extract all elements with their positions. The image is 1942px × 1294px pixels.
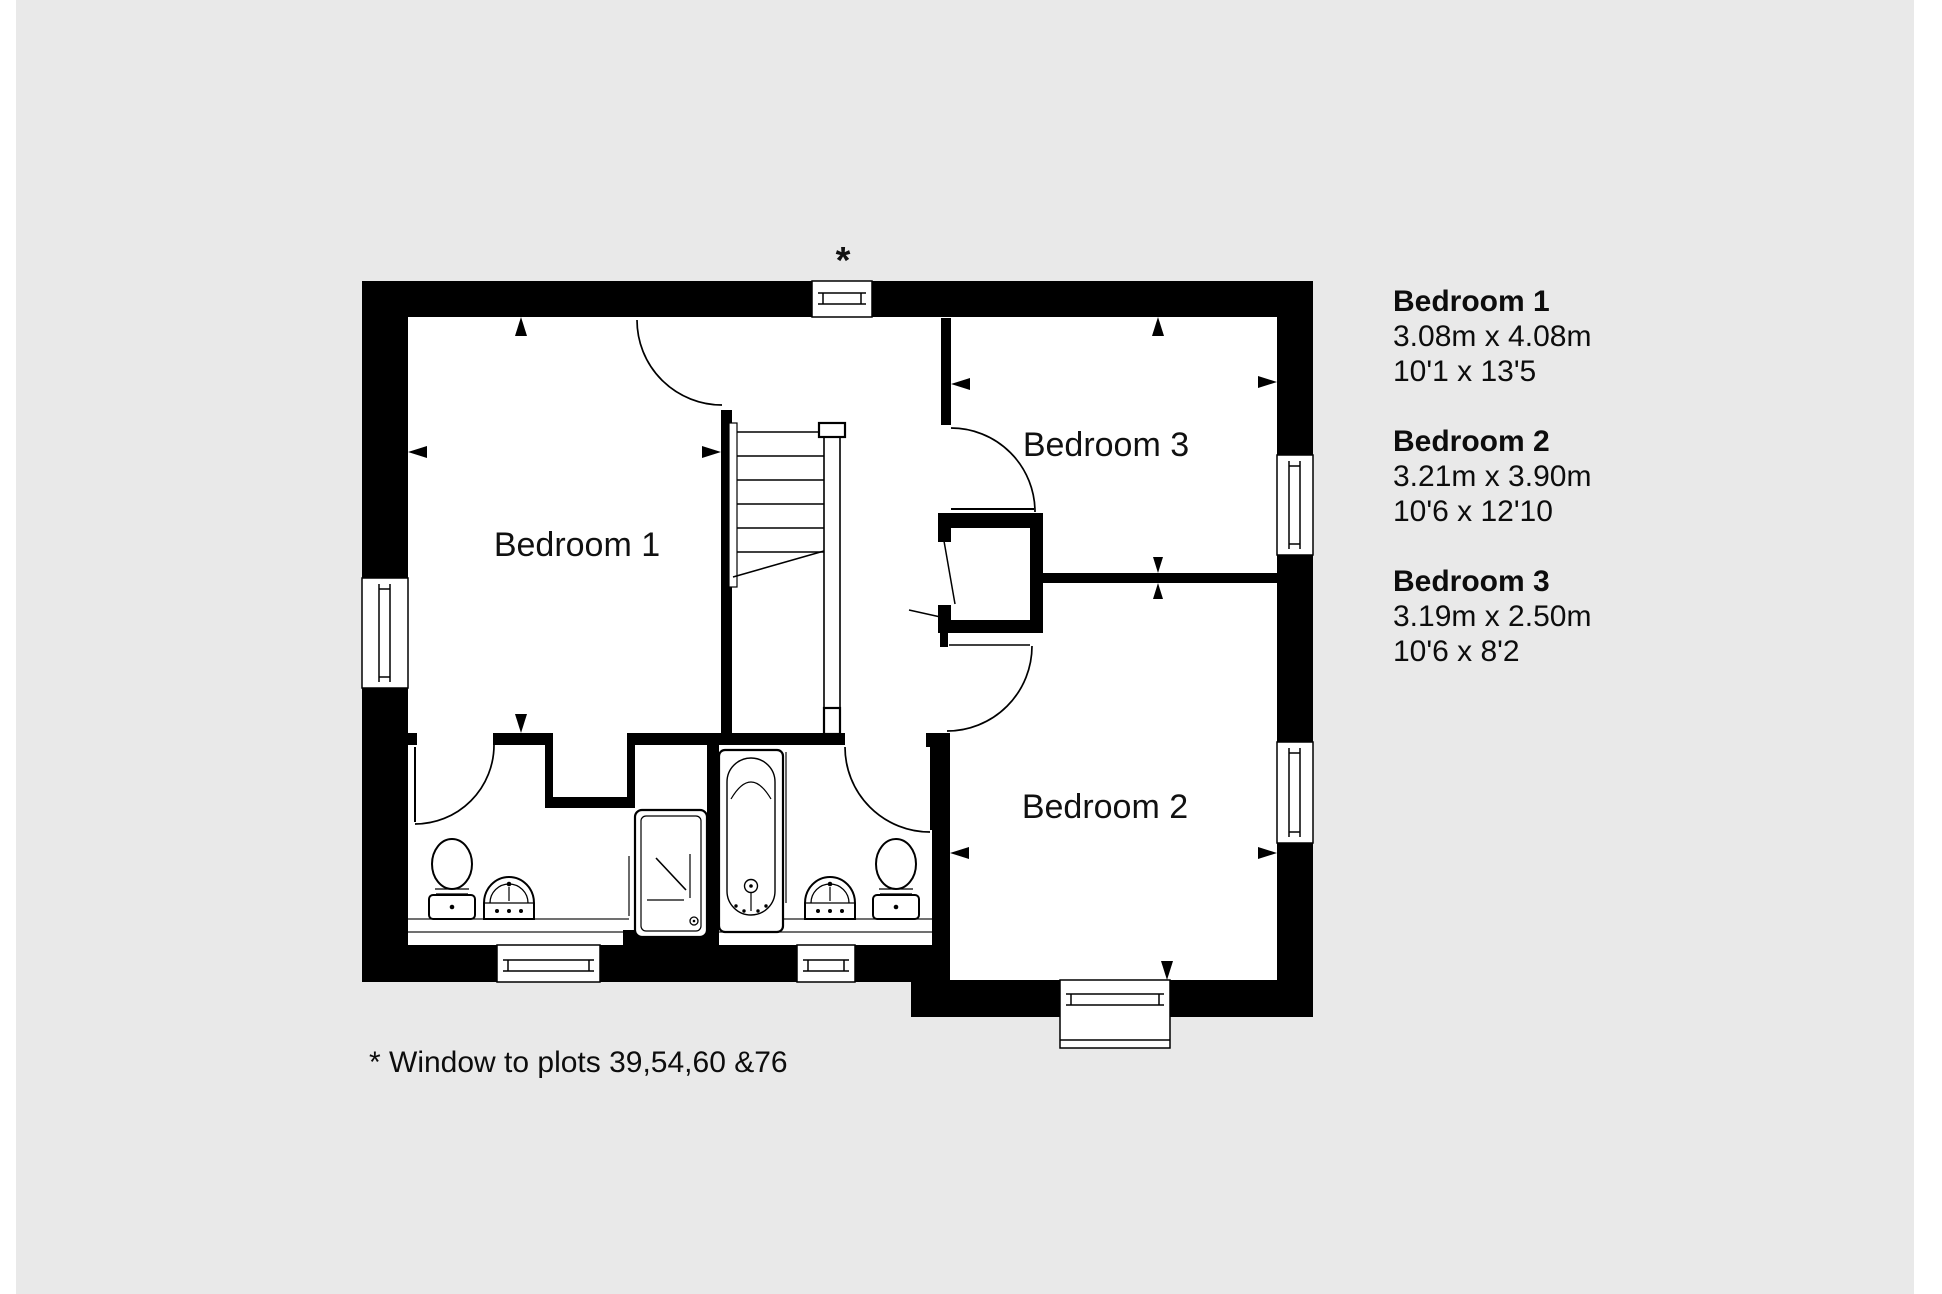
legend-bedroom2-name: Bedroom 2 [1393, 424, 1591, 459]
window-bedroom1-left [362, 578, 408, 688]
legend-bedroom1-name: Bedroom 1 [1393, 284, 1591, 319]
window-footnote: * Window to plots 39,54,60 &76 [369, 1046, 788, 1080]
legend-bedroom3-imperial: 10'6 x 8'2 [1393, 634, 1591, 669]
window-bedroom2-bottom [1060, 980, 1170, 1048]
legend-bedroom2-imperial: 10'6 x 12'10 [1393, 494, 1591, 529]
legend-item-bedroom2: Bedroom 2 3.21m x 3.90m 10'6 x 12'10 [1393, 424, 1591, 529]
room-label-bedroom1: Bedroom 1 [447, 525, 707, 565]
stair-handrail [824, 427, 840, 710]
window-bathroom-bottom [797, 945, 855, 982]
ensuite-basin-icon [484, 877, 534, 919]
stair-newel-top [819, 423, 845, 437]
legend-item-bedroom1: Bedroom 1 3.08m x 4.08m 10'1 x 13'5 [1393, 284, 1591, 389]
legend-bedroom1-imperial: 10'1 x 13'5 [1393, 354, 1591, 389]
window-bedroom2-right [1277, 742, 1313, 843]
stair-newel-bottom [824, 708, 840, 734]
bathroom-basin-icon [805, 877, 855, 919]
room-dimensions-legend: Bedroom 1 3.08m x 4.08m 10'1 x 13'5 Bedr… [1393, 284, 1591, 704]
window-bedroom3-right [1277, 455, 1313, 555]
legend-item-bedroom3: Bedroom 3 3.19m x 2.50m 10'6 x 8'2 [1393, 564, 1591, 669]
legend-bedroom3-metric: 3.19m x 2.50m [1393, 599, 1591, 634]
window-stairwell [812, 281, 872, 317]
legend-bedroom1-metric: 3.08m x 4.08m [1393, 319, 1591, 354]
window-ensuite-bottom [497, 945, 600, 982]
ensuite-shower-icon [635, 810, 707, 937]
window-note-marker: * [813, 240, 873, 283]
room-label-bedroom2: Bedroom 2 [975, 787, 1235, 827]
bathroom-bath-icon [719, 750, 783, 932]
floor-plan-drawing [0, 0, 1942, 1294]
page-background: Bedroom 1 Bedroom 3 Bedroom 2 * Bedroom … [0, 0, 1942, 1294]
bathroom-toilet-icon [873, 839, 919, 919]
ensuite-toilet-icon [429, 839, 475, 919]
legend-bedroom2-metric: 3.21m x 3.90m [1393, 459, 1591, 494]
room-label-bedroom3: Bedroom 3 [976, 425, 1236, 465]
legend-bedroom3-name: Bedroom 3 [1393, 564, 1591, 599]
